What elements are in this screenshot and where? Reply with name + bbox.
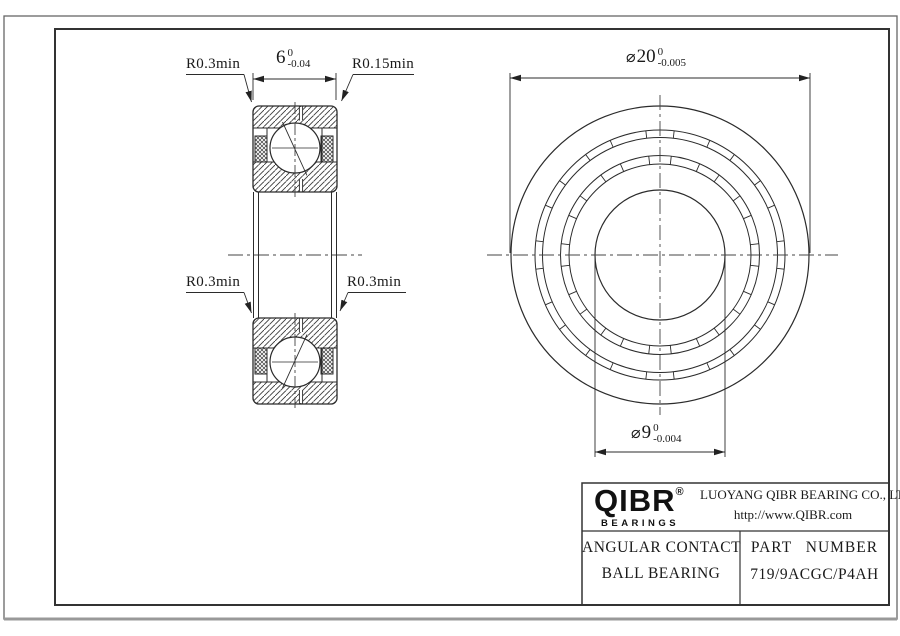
outer-diameter-value: 20 xyxy=(637,47,656,67)
cage-section-right-top xyxy=(321,136,333,162)
section-bottom-half xyxy=(253,313,337,408)
od-lower-tolerance: -0.005 xyxy=(658,58,686,69)
part-number-value: 719/9ACGC/P4AH xyxy=(740,566,889,584)
cage-section-left-top xyxy=(255,136,267,162)
company-logo: QIBR® xyxy=(594,486,684,516)
cage-section-right-bottom xyxy=(321,348,333,374)
bore-lower-tolerance: -0.004 xyxy=(653,434,681,445)
section-view xyxy=(186,73,414,408)
outer-diameter-text: ⌀ 20 0 -0.005 xyxy=(626,47,686,69)
radius-label-top-right: R0.15min xyxy=(352,56,414,73)
radius-label-bottom-right: R0.3min xyxy=(347,274,401,291)
diameter-symbol: ⌀ xyxy=(631,423,641,443)
diameter-symbol: ⌀ xyxy=(626,47,636,67)
width-dimension-text: 6 0 -0.04 xyxy=(276,48,310,70)
width-lower-tolerance: -0.04 xyxy=(288,59,311,70)
bore-diameter-text: ⌀ 9 0 -0.004 xyxy=(631,423,682,445)
radius-label-bottom-left: R0.3min xyxy=(186,274,240,291)
product-name-line2: BALL BEARING xyxy=(582,565,740,583)
cage-section-left-bottom xyxy=(255,348,267,374)
logo-tagline: BEARINGS xyxy=(601,518,679,529)
part-number-label: PART NUMBER xyxy=(740,539,889,557)
dimension-width xyxy=(253,73,336,100)
radius-label-top-left: R0.3min xyxy=(186,56,240,73)
drawing-sheet: R0.3min R0.15min R0.3min R0.3min 6 0 -0.… xyxy=(0,0,900,636)
registered-trademark-symbol: ® xyxy=(676,486,684,498)
company-website: http://www.QIBR.com xyxy=(700,507,886,523)
width-value: 6 xyxy=(276,48,286,68)
logo-text: QIBR xyxy=(594,483,676,518)
outer-border xyxy=(4,16,897,619)
bore-diameter-value: 9 xyxy=(642,423,652,443)
company-name: LUOYANG QIBR BEARING CO., LTD xyxy=(700,487,886,503)
product-name-line1: ANGULAR CONTACT xyxy=(582,539,740,557)
section-top-half xyxy=(253,102,337,197)
front-view xyxy=(487,73,838,457)
